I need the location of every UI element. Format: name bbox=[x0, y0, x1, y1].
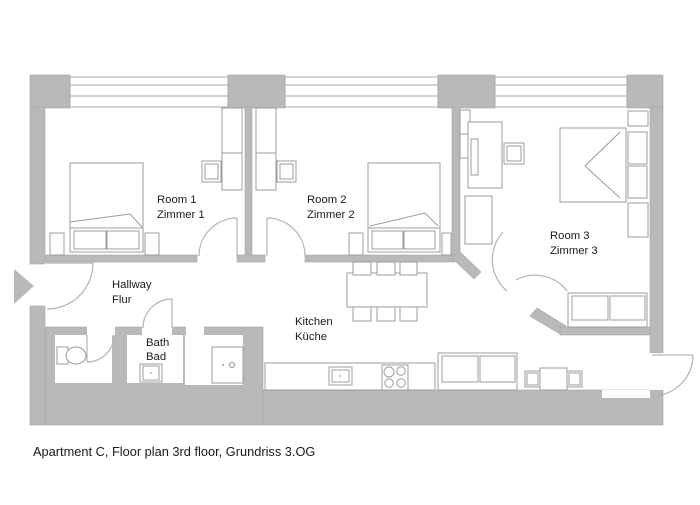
kitchen-sofa-cushion-left bbox=[442, 356, 478, 382]
wardrobe-room3 bbox=[465, 196, 492, 244]
sofa-room3-cushion-left bbox=[572, 296, 608, 320]
chair-room2-seat bbox=[280, 164, 293, 179]
bed-room3-pillow-bottom bbox=[628, 166, 647, 198]
wall-hall-room1 bbox=[45, 255, 197, 262]
room2-label-de: Zimmer 2 bbox=[307, 209, 355, 221]
toilet-bowl bbox=[66, 347, 86, 364]
dining-chair-bottom-2 bbox=[377, 307, 395, 321]
cabinet-room2 bbox=[256, 108, 276, 153]
floor-plan: Room 1 Zimmer 1 Room 2 Zimmer 2 Room 3 Z… bbox=[0, 0, 700, 500]
dining-table bbox=[347, 273, 427, 307]
window-room1 bbox=[70, 77, 228, 107]
wall-divider-room2-room3 bbox=[452, 107, 460, 257]
nightstand-room2-left bbox=[349, 233, 363, 255]
kitchen-sink-drain bbox=[339, 375, 341, 377]
wc-door-opening bbox=[87, 327, 115, 336]
cabinet-room1 bbox=[222, 108, 242, 153]
window-room3 bbox=[495, 77, 627, 107]
bed-room1-pillow-right bbox=[107, 231, 139, 249]
kitchen-sofa-cushion-right bbox=[480, 356, 515, 382]
desk-room2 bbox=[256, 153, 276, 190]
floor-plan-caption: Apartment C, Floor plan 3rd floor, Grund… bbox=[33, 444, 315, 459]
shower-handle bbox=[229, 362, 234, 367]
dining-chair-top-1 bbox=[353, 262, 371, 275]
small-table bbox=[540, 368, 567, 390]
bed-room1 bbox=[70, 163, 143, 228]
chair-room1-seat bbox=[205, 164, 218, 179]
bath-label-en: Bath bbox=[146, 337, 169, 349]
hallway-label-en: Hallway bbox=[112, 279, 152, 291]
bath-label-de: Bad bbox=[146, 351, 166, 363]
nightstand-room1-left bbox=[50, 233, 64, 255]
dining-chair-top-3 bbox=[400, 262, 417, 275]
shower-tray bbox=[212, 347, 243, 383]
room3-label-de: Zimmer 3 bbox=[550, 245, 598, 257]
bath-sink-drain bbox=[150, 372, 152, 374]
small-table-chair-right-seat bbox=[569, 373, 580, 385]
nightstand-room1-right bbox=[145, 233, 159, 255]
nightstand-room3-bottom bbox=[628, 203, 648, 237]
bed-room3 bbox=[560, 128, 626, 202]
bottom-wall-notch bbox=[602, 390, 650, 398]
bed-room3-pillow-top bbox=[628, 132, 647, 164]
bath-door-opening bbox=[142, 327, 172, 336]
stove-burner-4 bbox=[397, 379, 405, 387]
wall-left-lower bbox=[30, 306, 45, 425]
small-table-chair-left-seat bbox=[527, 373, 538, 385]
room3-label-en: Room 3 bbox=[550, 230, 590, 242]
wall-right bbox=[650, 107, 663, 353]
desk-room1 bbox=[222, 153, 242, 190]
wall-left-upper bbox=[30, 107, 45, 264]
stove-burner-3 bbox=[385, 379, 393, 387]
window-room2 bbox=[285, 77, 438, 107]
bed-room2-pillow-right bbox=[404, 231, 435, 249]
nightstand-room3-top bbox=[628, 111, 648, 126]
room2-label-en: Room 2 bbox=[307, 194, 347, 206]
exit-door-opening bbox=[650, 353, 663, 390]
wall-top-pillar-1 bbox=[228, 75, 285, 108]
sofa-room3-cushion-right bbox=[610, 296, 645, 320]
stove-burner-2 bbox=[397, 367, 405, 375]
wall-room3-bottom bbox=[560, 327, 650, 335]
wall-divider-room1-room2 bbox=[245, 107, 252, 258]
dining-chair-bottom-1 bbox=[353, 307, 371, 321]
wall-kitchen-room2 bbox=[305, 255, 455, 262]
wall-top-pillar-2 bbox=[438, 75, 495, 108]
kitchen-label-de: Küche bbox=[295, 331, 327, 343]
wall-top-right-block bbox=[627, 75, 663, 108]
nightstand-room2-right bbox=[442, 233, 451, 255]
dining-chair-top-2 bbox=[377, 262, 395, 275]
room1-label-de: Zimmer 1 bbox=[157, 209, 205, 221]
dining-chair-bottom-3 bbox=[400, 307, 417, 321]
bed-room1-pillow-left bbox=[74, 231, 106, 249]
stove-burner-1 bbox=[384, 367, 394, 377]
wall-top-left-block bbox=[30, 75, 70, 108]
chair-room3-seat bbox=[507, 146, 521, 161]
room1-label-en: Room 1 bbox=[157, 194, 197, 206]
shower-drain bbox=[222, 364, 224, 366]
desk-room3-monitor bbox=[471, 139, 478, 175]
windows bbox=[70, 77, 627, 107]
bed-room2-pillow-left bbox=[372, 231, 403, 249]
hallway-label-de: Flur bbox=[112, 294, 132, 306]
shower-door-opening bbox=[186, 327, 204, 336]
kitchen-label-en: Kitchen bbox=[295, 316, 333, 328]
wall-hall-stub bbox=[237, 255, 265, 262]
